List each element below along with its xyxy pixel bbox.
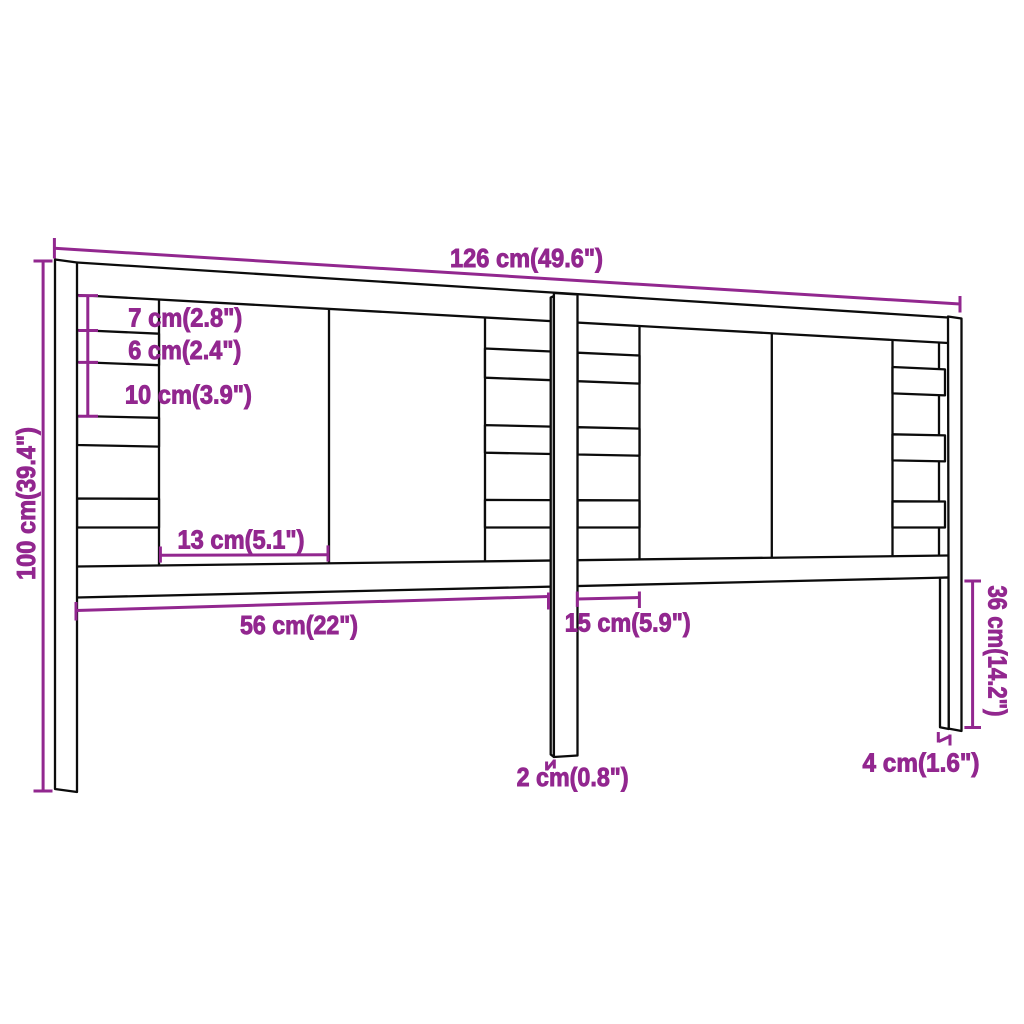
svg-text:126 cm(49.6"): 126 cm(49.6") xyxy=(450,243,603,273)
svg-text:56 cm(22"): 56 cm(22") xyxy=(240,610,358,640)
svg-text:36 cm(14.2"): 36 cm(14.2") xyxy=(983,586,1013,717)
svg-text:7 cm(2.8"): 7 cm(2.8") xyxy=(128,302,242,332)
svg-text:4 cm(1.6"): 4 cm(1.6") xyxy=(863,747,980,777)
svg-text:13 cm(5.1"): 13 cm(5.1") xyxy=(178,525,305,555)
svg-text:6 cm(2.4"): 6 cm(2.4") xyxy=(128,335,241,365)
svg-text:10 cm(3.9"): 10 cm(3.9") xyxy=(125,379,252,409)
svg-text:100 cm(39.4"): 100 cm(39.4") xyxy=(11,427,41,580)
svg-text:2 cm(0.8"): 2 cm(0.8") xyxy=(517,762,629,792)
svg-text:15 cm(5.9"): 15 cm(5.9") xyxy=(565,607,691,637)
